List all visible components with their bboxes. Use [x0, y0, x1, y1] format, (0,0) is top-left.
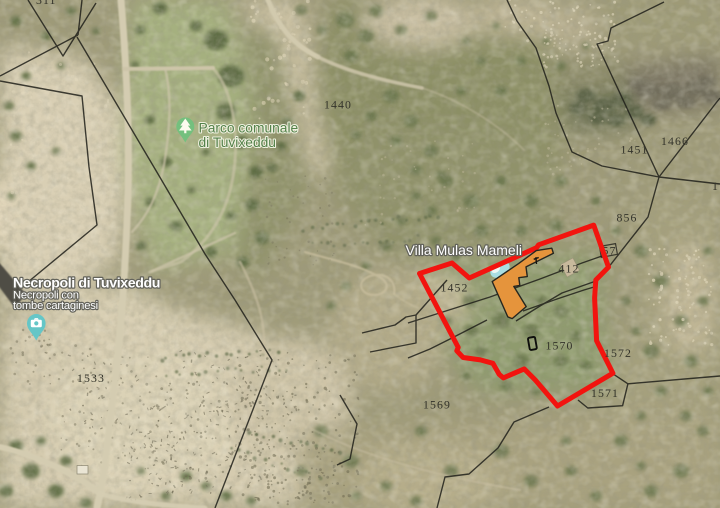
svg-text:1570: 1570 — [546, 339, 574, 353]
svg-text:1572: 1572 — [604, 346, 632, 360]
svg-text:311: 311 — [36, 0, 57, 7]
svg-text:1571: 1571 — [591, 386, 619, 400]
svg-text:Parco comunale: Parco comunale — [199, 121, 299, 136]
svg-text:412: 412 — [559, 262, 580, 276]
svg-text:di Tuvixeddu: di Tuvixeddu — [199, 135, 276, 150]
svg-text:1: 1 — [712, 179, 719, 193]
svg-text:tombe cartaginesi: tombe cartaginesi — [13, 300, 98, 312]
svg-text:1569: 1569 — [423, 398, 451, 412]
svg-text:1452: 1452 — [441, 281, 469, 295]
svg-text:1440: 1440 — [324, 98, 352, 112]
svg-text:856: 856 — [617, 211, 638, 225]
svg-text:1466: 1466 — [661, 134, 689, 148]
svg-text:Villa Mulas Mameli: Villa Mulas Mameli — [406, 242, 522, 258]
svg-text:1451: 1451 — [621, 143, 649, 157]
svg-text:1533: 1533 — [77, 371, 105, 385]
